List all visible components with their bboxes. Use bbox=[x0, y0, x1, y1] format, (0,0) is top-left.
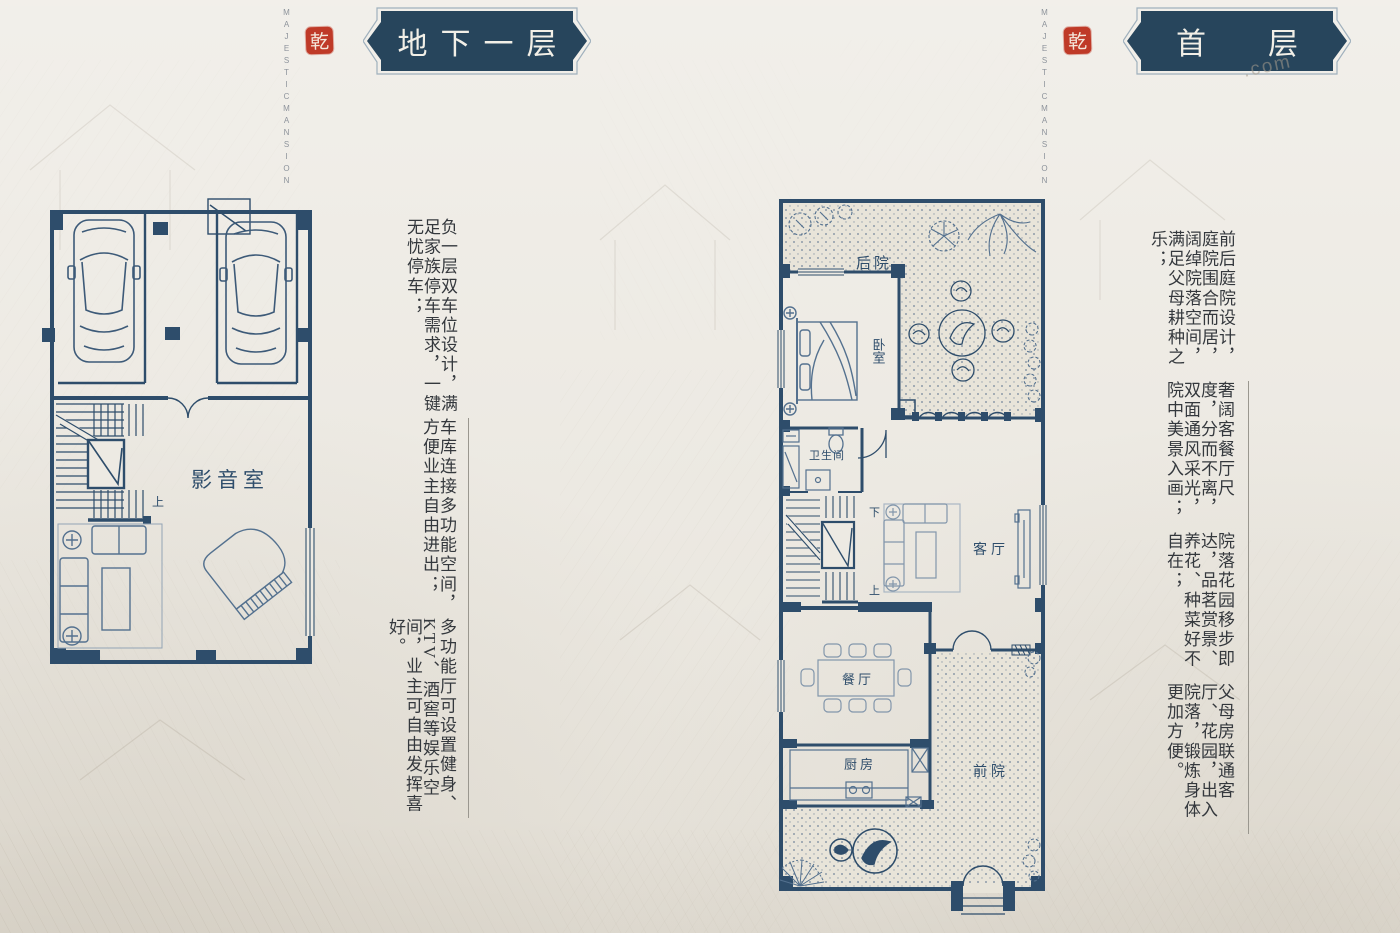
basement-floor-plan: 上 影音室 bbox=[40, 195, 320, 675]
first-floor-banner: 首 层 bbox=[1123, 7, 1351, 75]
basement-banner: 地下一层 bbox=[363, 7, 591, 75]
stairs-icon bbox=[56, 404, 151, 524]
frontyard-label: 前院 bbox=[973, 763, 1009, 780]
backyard-label: 后院 bbox=[856, 254, 892, 272]
brand-word: MANSION bbox=[1038, 104, 1051, 188]
first-floor-description: 前后庭院设计，庭院围合而居，阔绰院落空间，满足父母耕种之乐； 奢阔客餐厅尺度，分… bbox=[1134, 230, 1249, 834]
brand-vertical-text: MAJESTIC MANSION bbox=[1038, 8, 1051, 118]
stair-direction-label: 下 bbox=[869, 507, 880, 519]
car-icon bbox=[68, 220, 140, 362]
brand-vertical-text: MAJESTIC MANSION bbox=[280, 8, 293, 118]
description-column: 车库连接多功能空间，方便业主自由进出； bbox=[374, 418, 469, 618]
seal-character: 乾 bbox=[1068, 27, 1088, 55]
description-column: 负一层双车位设计，满足家族停车需求，一键无忧停车； bbox=[374, 218, 469, 418]
garage-media-wall bbox=[52, 398, 310, 418]
tv-cabinet-icon bbox=[1015, 510, 1030, 588]
garage-bay-walls bbox=[58, 212, 297, 383]
basement-banner-title: 地下一层 bbox=[363, 7, 591, 75]
bedroom-label: 卧室 bbox=[871, 338, 886, 364]
description-column: 前后庭院设计，庭院围合而居，阔绰院落空间，满足父母耕种之乐； bbox=[1134, 230, 1249, 381]
stairs-icon bbox=[786, 496, 858, 602]
dining-room-label: 餐厅 bbox=[842, 672, 874, 687]
brand-word: MAJESTIC bbox=[280, 8, 293, 104]
double-door-icon bbox=[168, 398, 208, 418]
grand-piano-icon bbox=[199, 518, 301, 620]
window-icon bbox=[305, 528, 315, 636]
description-column: 多功能厅可设置健身、KTV、酒窖等娱乐空间，业主可自由发挥喜好。 bbox=[374, 618, 469, 818]
bed-icon bbox=[784, 307, 857, 415]
brand-word: MANSION bbox=[280, 104, 293, 188]
living-room-label: 客厅 bbox=[973, 541, 1009, 558]
description-column: 院落花园移步即达，品茗赏景、养花、种菜好不自在； bbox=[1134, 532, 1249, 683]
brand-seal-stamp: 乾 bbox=[1064, 27, 1092, 55]
description-column: 父母房联通客厅、花园，出入院落，锻炼身体更加方便。 bbox=[1134, 683, 1249, 834]
brand-seal-stamp: 乾 bbox=[306, 27, 334, 55]
first-floor-banner-title: 首 层 bbox=[1123, 7, 1351, 75]
backyard-paving bbox=[783, 203, 1041, 416]
seal-character: 乾 bbox=[310, 27, 330, 55]
basement-description: 负一层双车位设计，满足家族停车需求，一键无忧停车； 车库连接多功能空间，方便业主… bbox=[374, 218, 469, 818]
sofa-set-icon bbox=[58, 524, 162, 648]
stair-direction-label: 上 bbox=[869, 584, 880, 597]
kitchen-label: 厨房 bbox=[844, 757, 876, 772]
description-column: 奢阔客餐厅尺度，分而不离，双面通风采光，院中美景入画； bbox=[1134, 381, 1249, 532]
media-room-label: 影音室 bbox=[191, 468, 269, 492]
stair-direction-label: 上 bbox=[152, 495, 164, 509]
bathroom-label: 卫生间 bbox=[809, 448, 845, 462]
living-sofa-icon bbox=[884, 504, 960, 592]
first-floor-plan: 卧室 卫生间 下 上 客厅 bbox=[765, 190, 1060, 930]
car-icon bbox=[220, 222, 292, 364]
brand-word: MAJESTIC bbox=[1038, 8, 1051, 104]
banner-char: 首 bbox=[1176, 19, 1206, 63]
